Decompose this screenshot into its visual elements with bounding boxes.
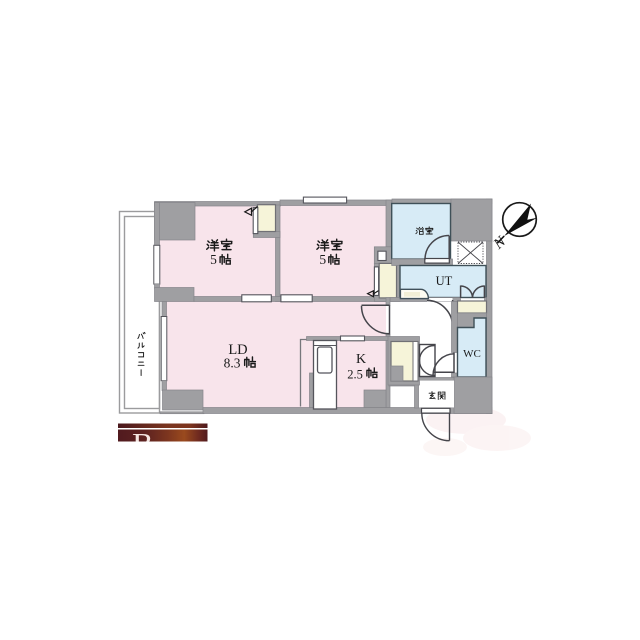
svg-text:8.3: 8.3 xyxy=(224,356,241,371)
svg-text:WC: WC xyxy=(463,348,481,360)
svg-text:UT: UT xyxy=(436,274,453,288)
svg-text:K: K xyxy=(356,352,366,367)
svg-text:5: 5 xyxy=(210,252,217,267)
svg-text:2.5: 2.5 xyxy=(347,368,363,382)
svg-text:5: 5 xyxy=(319,252,326,267)
